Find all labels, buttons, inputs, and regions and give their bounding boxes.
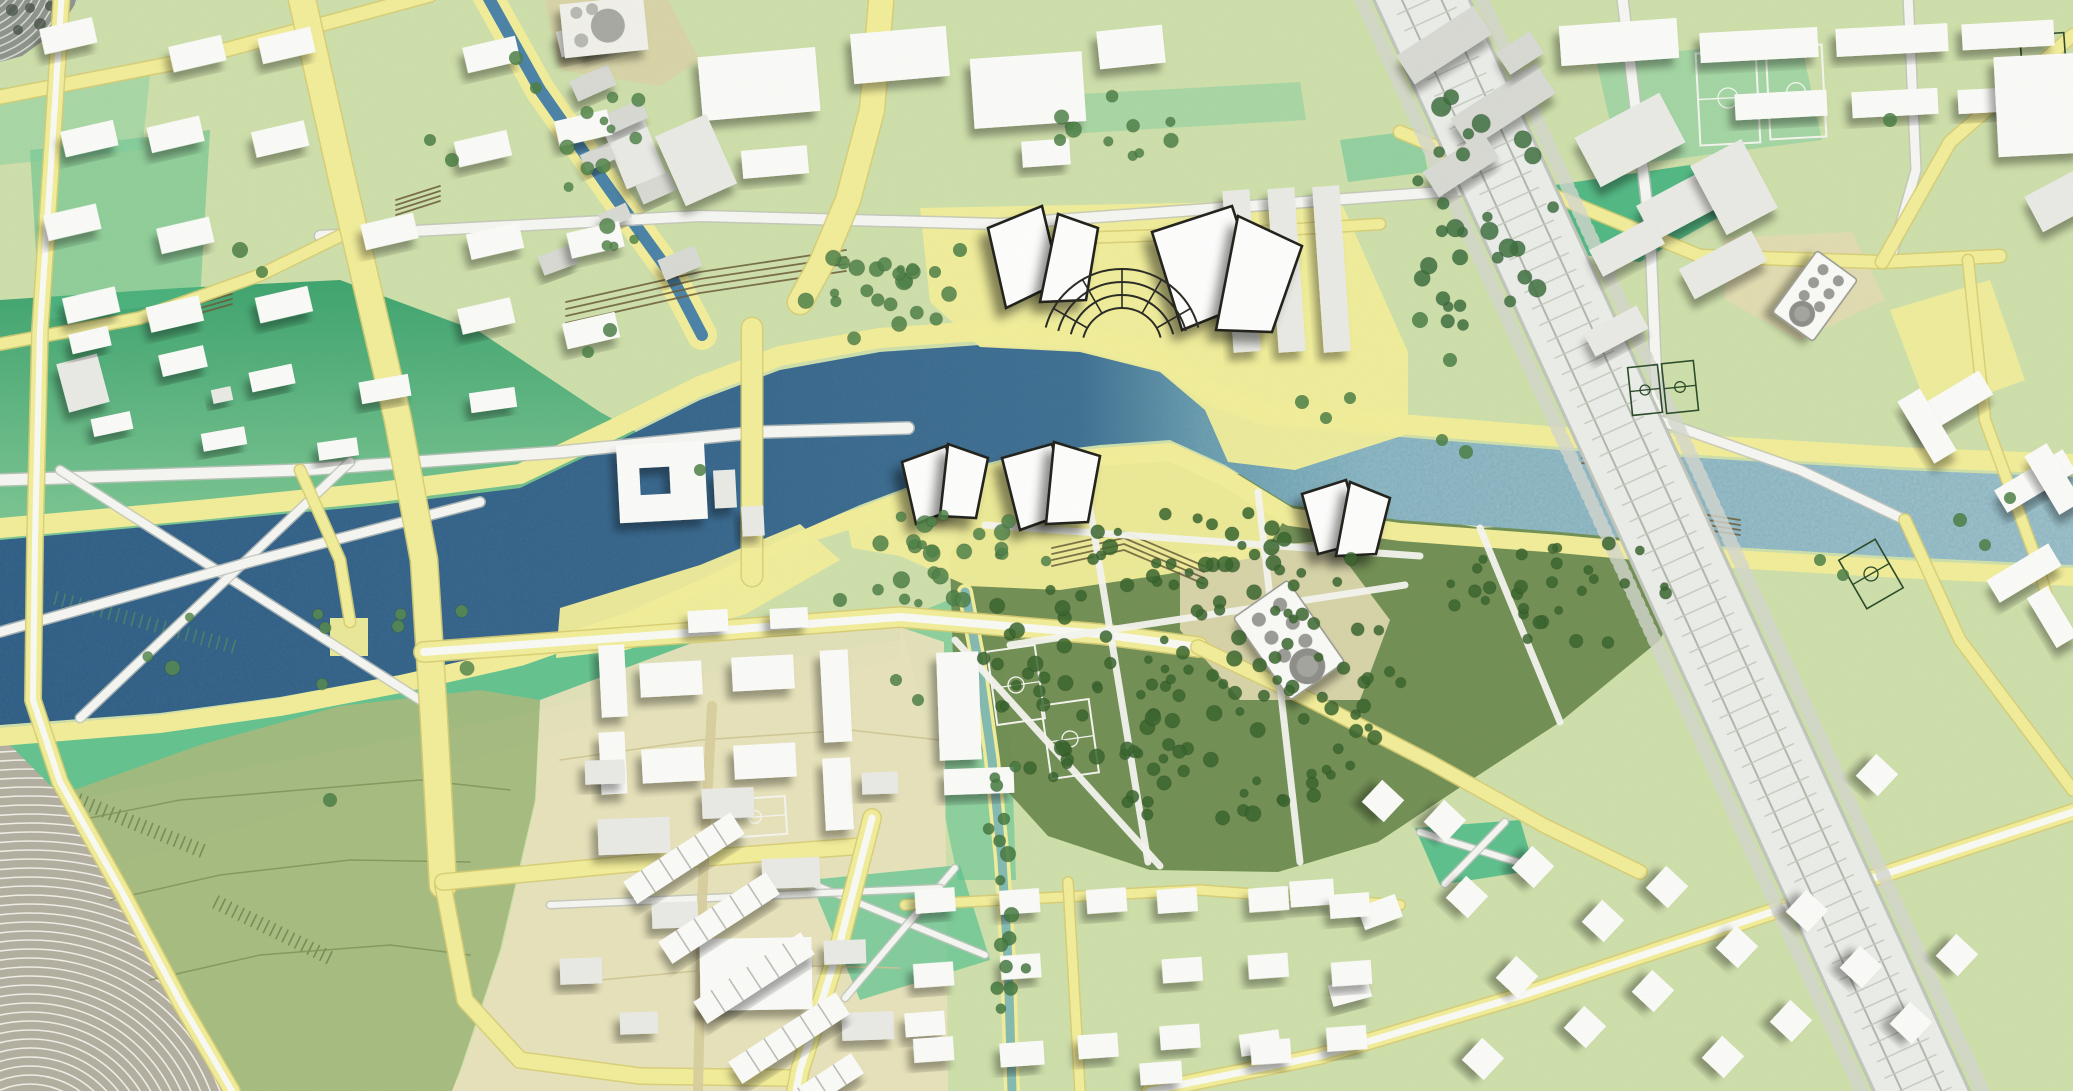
masterplan-stage [0, 0, 2073, 1091]
masterplan-map [0, 0, 2073, 1091]
paper-texture-overlay [0, 0, 2073, 1091]
